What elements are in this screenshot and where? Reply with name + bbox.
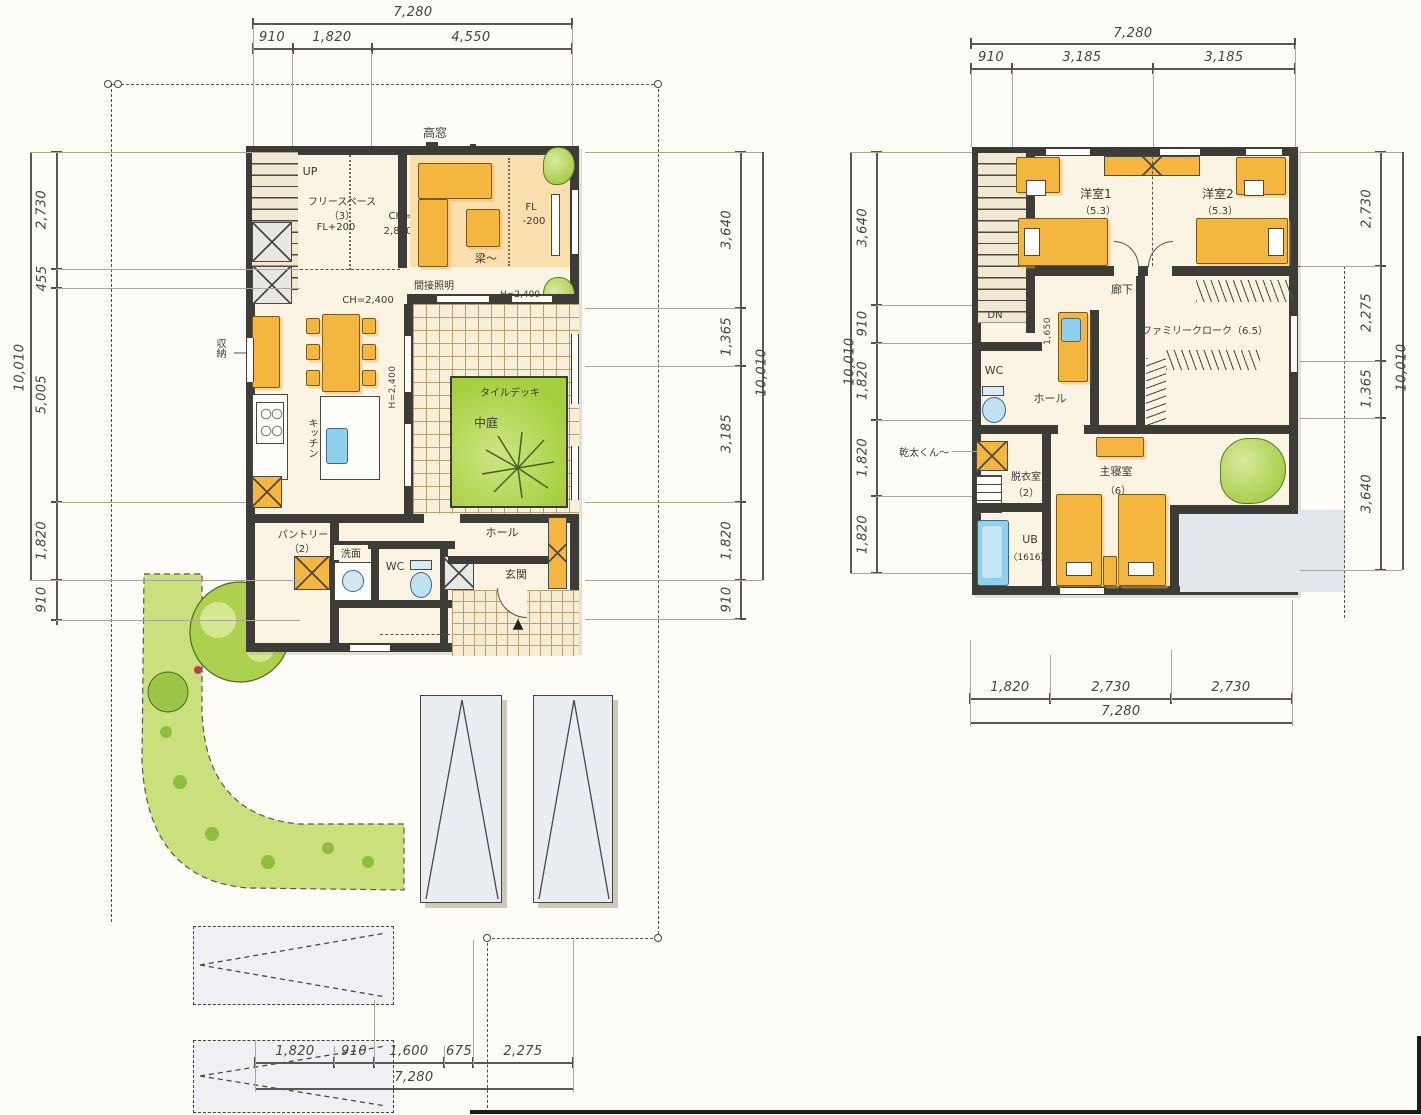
- door-opening: [424, 514, 460, 523]
- sofa: [418, 163, 492, 199]
- room-label-wc2: WC: [978, 364, 1010, 377]
- dim-label: 3,185: [1032, 50, 1132, 65]
- ext-line: [876, 305, 972, 306]
- dim-label: 910: [971, 50, 1011, 65]
- chair: [1026, 180, 1046, 196]
- ext-line: [1295, 45, 1296, 147]
- dim-line: [30, 152, 32, 580]
- dining-table: [322, 314, 360, 392]
- high-window-mark: [426, 142, 438, 153]
- room-label-pantry: パントリー: [272, 526, 334, 541]
- entrance-arrow: ▲: [508, 616, 528, 632]
- courtyard-plant: [478, 430, 558, 502]
- ext-line: [585, 580, 762, 581]
- dim-line: [970, 698, 1292, 700]
- dim-label: 2,730: [1360, 173, 1375, 245]
- floor-level-divider: [508, 158, 510, 266]
- toilet-bowl: [982, 397, 1006, 423]
- dim-label: 1,820: [856, 345, 871, 417]
- boundary-marker: [114, 80, 122, 88]
- leader-line: [234, 352, 246, 354]
- site-boundary-south: [487, 938, 488, 1113]
- room-size-bedroom1: （5.3）: [1076, 202, 1120, 217]
- ext-line: [292, 52, 293, 146]
- dim-label: 10,010: [755, 331, 770, 415]
- dining-chair: [306, 344, 320, 360]
- hanger-rail: [1196, 280, 1294, 302]
- ext-line: [1300, 418, 1380, 419]
- ext-line: [255, 1040, 256, 1092]
- dim-line: [56, 152, 58, 625]
- boundary-marker: [654, 934, 662, 942]
- ext-line: [971, 70, 972, 147]
- parking-space: [533, 695, 613, 903]
- ext-line: [1292, 600, 1293, 726]
- wall: [972, 503, 1042, 512]
- toilet-bowl: [410, 572, 432, 598]
- high-window-label: 高窓: [413, 124, 457, 141]
- dim-label: 910: [252, 30, 292, 45]
- window: [571, 446, 579, 500]
- parking-space-dashed: [193, 926, 394, 1005]
- window: [437, 295, 489, 303]
- ext-line: [876, 496, 972, 497]
- boundary-marker: [104, 80, 112, 88]
- dresser: [1096, 437, 1144, 457]
- chair: [1244, 180, 1264, 196]
- window: [1160, 148, 1200, 156]
- desk-dim-note: 1,650: [1043, 305, 1053, 357]
- bathtub-inner: [982, 526, 1002, 578]
- hanger-rail: [1166, 350, 1260, 370]
- dryer-note: 乾太くん〜: [893, 444, 955, 459]
- dim-line: [253, 23, 573, 25]
- dim-label: 1,820: [720, 505, 735, 577]
- nightstand: [1103, 556, 1117, 586]
- wall: [1090, 310, 1099, 434]
- ext-line: [1050, 655, 1051, 702]
- room-size-bedroom2: （5.3）: [1198, 202, 1242, 217]
- dining-chair: [306, 370, 320, 386]
- kitchen-sink: [326, 428, 348, 464]
- parking-space: [420, 695, 502, 903]
- ext-line: [1300, 570, 1402, 571]
- lower-roof-area: [1180, 510, 1345, 592]
- room-size-pantry: （2）: [286, 540, 318, 555]
- ext-line: [253, 25, 254, 146]
- room-label-senmen: 洗面: [334, 545, 368, 560]
- kitchen-cabinet: [252, 316, 280, 388]
- window: [571, 334, 579, 404]
- room-label-family-cloak: ファミリークローク（6.5）: [1140, 322, 1270, 337]
- dim-label: 1,365: [720, 301, 735, 373]
- closet-under-stairs: [252, 266, 292, 304]
- dim-label: 2,730: [1071, 680, 1151, 695]
- dining-chair: [362, 344, 376, 360]
- wall: [1170, 505, 1298, 514]
- gas-dryer: [976, 441, 1008, 471]
- ext-line: [876, 420, 972, 421]
- door-opening: [1114, 266, 1138, 276]
- dim-line: [970, 722, 1292, 724]
- dim-label: 7,280: [1081, 704, 1161, 719]
- dim-label: 1,600: [374, 1044, 444, 1059]
- ext-line: [572, 25, 573, 146]
- ext-line: [585, 502, 740, 503]
- window: [246, 338, 254, 382]
- dim-label: 1,820: [255, 1044, 335, 1059]
- room-label-ub: UB: [1016, 533, 1044, 546]
- dim-label: 1,820: [856, 422, 871, 494]
- ext-line: [30, 580, 300, 581]
- dim-label: 3,640: [720, 194, 735, 266]
- room-size-datsui: （2）: [1010, 484, 1042, 499]
- dim-line: [255, 1062, 573, 1064]
- shoe-closet: [548, 517, 567, 589]
- washbasin-bowl: [342, 570, 364, 592]
- kitchen-label: キッチン: [304, 418, 319, 458]
- window: [1290, 316, 1298, 372]
- parking-triangle: [421, 696, 503, 904]
- ext-line: [56, 269, 300, 270]
- ext-line: [56, 288, 300, 289]
- ext-line: [56, 502, 246, 503]
- stairs-up-label: UP: [295, 165, 325, 178]
- ext-line: [573, 940, 574, 1092]
- site-boundary-left: [111, 84, 112, 922]
- ext-line: [56, 620, 300, 621]
- dim-label: 3,185: [1174, 50, 1274, 65]
- toilet-tank: [410, 560, 432, 570]
- room-size-ub: 〈1616〉: [1006, 550, 1052, 563]
- ext-line: [334, 1046, 335, 1066]
- dim-line: [740, 152, 742, 620]
- parking-triangle: [534, 696, 614, 904]
- dim-label: 5,005: [35, 359, 50, 431]
- window: [1246, 148, 1282, 156]
- wall: [371, 548, 379, 606]
- ext-line: [970, 640, 971, 726]
- ext-line: [374, 1000, 375, 1066]
- dim-line: [971, 43, 1295, 45]
- pillow: [1128, 562, 1154, 576]
- boundary-line: [1344, 266, 1345, 618]
- hanger-rail: [1146, 358, 1166, 428]
- dim-label: 7,280: [374, 1070, 454, 1085]
- window: [350, 644, 390, 652]
- dim-label: 10,010: [13, 326, 28, 410]
- ext-line: [585, 152, 762, 153]
- dining-chair: [306, 318, 320, 334]
- ext-line: [371, 52, 372, 146]
- toilet-tank: [982, 386, 1004, 396]
- cooktop: [256, 402, 284, 444]
- floor-plan-drawing: UP フリースペース （3） FL+200 CH= 2,800 FL -200 …: [0, 0, 1421, 1115]
- dim-line: [876, 152, 878, 573]
- high-window-mark: [470, 144, 476, 153]
- dim-label: 1,820: [970, 680, 1050, 695]
- room-label-wc: WC: [380, 560, 410, 573]
- room-label-master: 主寝室: [1088, 463, 1144, 479]
- door-opening: [1058, 425, 1084, 434]
- wall: [1042, 425, 1051, 595]
- room-label-courtyard: 中庭: [462, 414, 510, 431]
- dim-label: 7,280: [1093, 26, 1173, 41]
- pillow: [1066, 562, 1092, 576]
- dining-chair: [362, 318, 376, 334]
- dim-label: 455: [35, 256, 50, 301]
- dim-label: 4,550: [411, 30, 531, 45]
- ext-line: [1300, 152, 1402, 153]
- indirect-lighting-note: 間接照明: [398, 277, 470, 292]
- room-label-bedroom1: 洋室1: [1070, 185, 1122, 202]
- ext-line: [850, 152, 972, 153]
- ext-line: [585, 366, 740, 367]
- storage-label: 収納: [212, 338, 227, 358]
- wall: [972, 342, 1042, 351]
- stairs-dn-label: DN: [980, 310, 1010, 321]
- ext-line: [30, 152, 298, 153]
- site-boundary-bottom: [487, 938, 658, 939]
- dim-line: [253, 48, 573, 50]
- dim-label: 3,640: [1360, 458, 1375, 530]
- ext-line: [585, 308, 740, 309]
- wall: [1170, 505, 1179, 595]
- wall: [448, 556, 548, 564]
- wall: [398, 147, 407, 268]
- dim-label: 7,280: [373, 5, 453, 20]
- dim-label: 3,185: [720, 398, 735, 470]
- dim-label: 1,820: [35, 505, 50, 577]
- dim-label: 2,730: [1191, 680, 1271, 695]
- pantry-shelf: [294, 556, 330, 590]
- site-boundary-top: [111, 84, 659, 85]
- door-opening: [1148, 266, 1172, 276]
- scan-edge: [1417, 1036, 1421, 1112]
- ext-line: [1300, 361, 1380, 362]
- room-label-tiledeck: タイルデッキ: [474, 384, 546, 399]
- room-label-hall: ホール: [478, 524, 526, 540]
- dim-line: [255, 1088, 573, 1090]
- ceiling-height-note: CH=2,400: [330, 295, 406, 306]
- wall: [246, 514, 579, 523]
- scan-edge: [470, 1110, 1421, 1114]
- wall: [1136, 276, 1145, 434]
- dim-label: 910: [856, 296, 871, 352]
- window: [1060, 587, 1104, 595]
- dim-label: 10,010: [1395, 326, 1410, 410]
- closet-under-stairs: [252, 222, 292, 262]
- chair: [1061, 318, 1081, 342]
- ext-line: [1012, 70, 1013, 147]
- roof-overhang-line: [380, 634, 450, 635]
- floor-level-note: FL+200: [308, 222, 364, 233]
- ext-line: [473, 940, 474, 1066]
- dim-line: [971, 68, 1295, 70]
- dim-label: 1,820: [292, 30, 372, 45]
- dining-chair: [362, 370, 376, 386]
- dim-label: 1,820: [856, 499, 871, 571]
- dim-label: 910: [334, 1044, 374, 1059]
- ext-line: [876, 343, 972, 344]
- sofa: [418, 199, 448, 267]
- floor-level-note: FL: [516, 202, 546, 213]
- dim-label: 2,730: [35, 174, 50, 246]
- height-note: H=2,400: [388, 354, 398, 420]
- window: [571, 190, 579, 254]
- room-label-hall2: ホール: [1026, 390, 1074, 406]
- boundary-marker: [654, 80, 662, 88]
- refrigerator: [252, 476, 282, 508]
- ext-line: [850, 573, 972, 574]
- dim-tick: [970, 38, 972, 49]
- boundary-marker: [483, 934, 491, 942]
- ext-line: [1153, 70, 1154, 147]
- indirect-light-line: [300, 269, 400, 270]
- window: [404, 424, 412, 486]
- window: [404, 336, 412, 392]
- dim-label: 2,275: [1360, 277, 1375, 349]
- floor-level-note: -200: [514, 216, 554, 227]
- wall: [972, 425, 1298, 434]
- ext-line: [585, 619, 740, 620]
- height-note: H=2,400: [487, 290, 553, 300]
- site-boundary-right: [658, 84, 659, 939]
- bathtub: [977, 520, 1009, 586]
- parking-triangle: [194, 927, 392, 1003]
- wall: [330, 600, 455, 608]
- beam-note: 梁〜: [468, 250, 504, 266]
- room-label-freespace: フリースペース: [300, 193, 384, 208]
- pillow: [1268, 228, 1284, 256]
- room-label-genkan: 玄関: [496, 566, 536, 582]
- ext-line: [444, 1046, 445, 1066]
- dim-label: 2,275: [473, 1044, 573, 1059]
- living-table: [466, 209, 500, 247]
- ext-line: [1300, 266, 1380, 267]
- room-size-freespace: （3）: [318, 207, 366, 222]
- dim-label: 3,640: [856, 192, 871, 264]
- pillow: [1024, 228, 1040, 256]
- ext-line: [1171, 650, 1172, 702]
- leader-line: [952, 451, 978, 452]
- dim-label: 1,365: [1360, 361, 1375, 417]
- window: [1046, 148, 1090, 156]
